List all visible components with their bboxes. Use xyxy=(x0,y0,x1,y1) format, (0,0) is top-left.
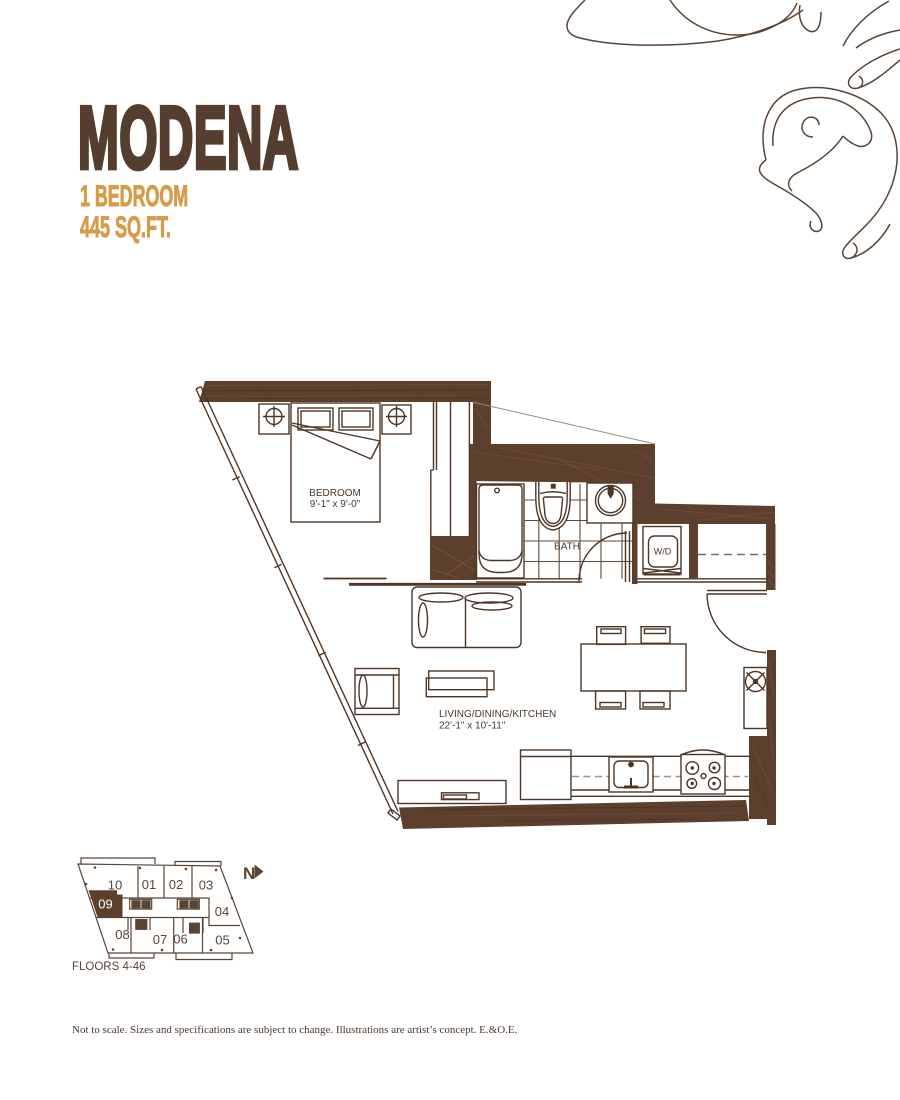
svg-text:BEDROOM: BEDROOM xyxy=(309,488,361,499)
svg-text:BATH: BATH xyxy=(554,542,580,553)
svg-text:05: 05 xyxy=(215,933,229,948)
svg-text:07: 07 xyxy=(153,932,167,947)
svg-text:10: 10 xyxy=(108,878,122,893)
svg-text:08: 08 xyxy=(115,927,129,942)
svg-text:22'-1" x 10'-11": 22'-1" x 10'-11" xyxy=(439,721,506,732)
svg-text:03: 03 xyxy=(199,878,213,893)
svg-text:9'-1" x 9'-0": 9'-1" x 9'-0" xyxy=(310,499,361,510)
svg-text:01: 01 xyxy=(142,877,156,892)
svg-text:FLOORS 4-46: FLOORS 4-46 xyxy=(72,961,146,973)
svg-text:06: 06 xyxy=(173,932,187,947)
svg-text:N: N xyxy=(243,864,255,883)
svg-text:LIVING/DINING/KITCHEN: LIVING/DINING/KITCHEN xyxy=(439,709,556,720)
svg-text:W/D: W/D xyxy=(654,547,672,557)
svg-text:02: 02 xyxy=(169,877,183,892)
svg-text:04: 04 xyxy=(215,904,229,919)
svg-text:09: 09 xyxy=(98,897,112,912)
